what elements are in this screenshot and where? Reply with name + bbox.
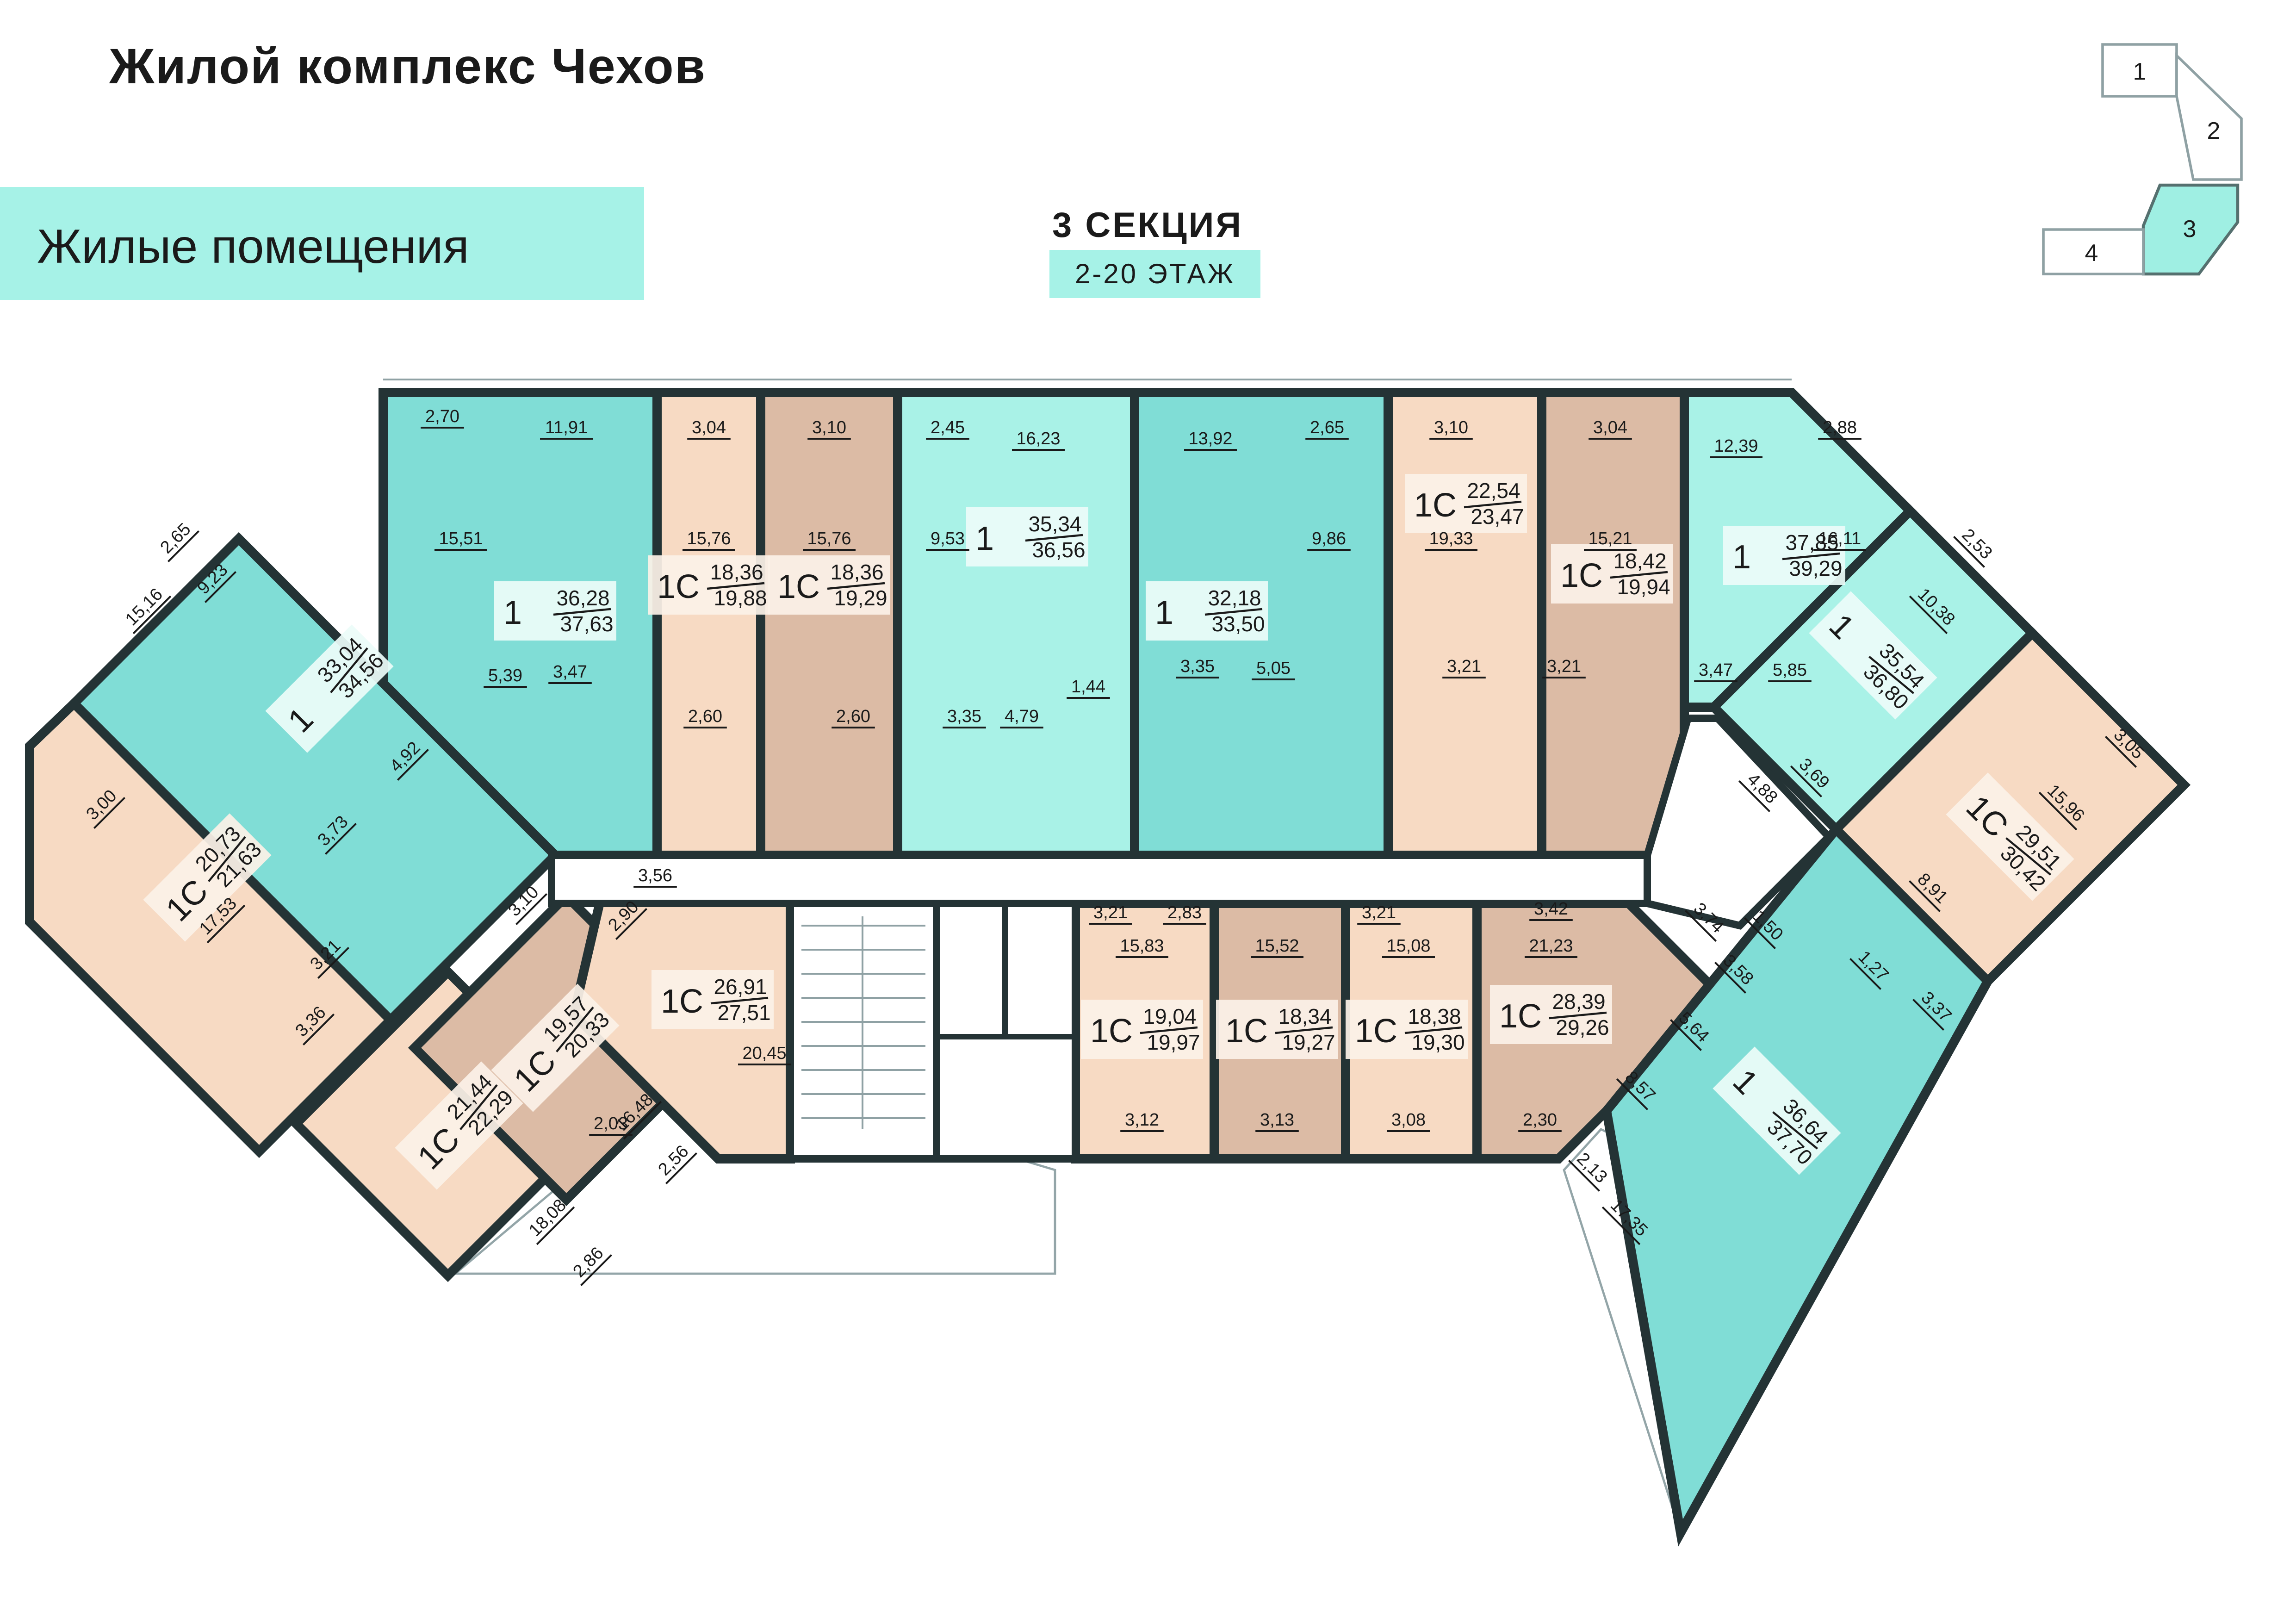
apartment-area-living: 35,34 (1028, 512, 1081, 536)
svg-text:2,88: 2,88 (1823, 418, 1857, 437)
page-title: Жилой комплекс Чехов (109, 38, 706, 94)
apartment-area-total: 37,63 (560, 612, 613, 636)
dimension-label: 2,30 (1518, 1110, 1562, 1131)
dimension-label: 4,79 (1000, 707, 1043, 728)
svg-text:13,92: 13,92 (1188, 429, 1232, 448)
floor-plan: 136,2837,631С18,3619,881С18,3619,29135,3… (30, 380, 2184, 1533)
svg-text:3,10: 3,10 (1434, 418, 1468, 437)
residential-badge-label: Жилые помещения (37, 220, 469, 274)
apartment-type: 1С (777, 568, 820, 605)
dimension-label: 2,03 (589, 1114, 633, 1135)
svg-text:5,85: 5,85 (1773, 660, 1807, 680)
svg-text:2,53: 2,53 (1958, 525, 1996, 563)
apartment-type: 1С (1355, 1013, 1397, 1050)
dimension-label: 2,45 (926, 418, 969, 439)
apartment-area-total: 29,26 (1556, 1015, 1609, 1039)
dimension-label: 3,42 (1529, 899, 1573, 920)
apartment-area-total: 19,27 (1282, 1030, 1335, 1054)
apartment-area-total: 19,97 (1147, 1030, 1200, 1054)
dimension-label: 15,76 (683, 529, 735, 550)
svg-text:2,30: 2,30 (1523, 1110, 1557, 1130)
svg-text:3,10: 3,10 (812, 418, 846, 437)
dimension-label: 3,04 (1589, 418, 1632, 439)
apartment-area-total: 19,30 (1411, 1030, 1464, 1054)
svg-text:12,39: 12,39 (1714, 436, 1758, 456)
dimension-label: 15,76 (803, 529, 856, 550)
svg-text:3,47: 3,47 (553, 662, 587, 682)
svg-text:15,08: 15,08 (1386, 936, 1430, 956)
svg-text:3,35: 3,35 (1180, 657, 1215, 676)
svg-text:19,33: 19,33 (1429, 529, 1473, 548)
apartment-area-living: 18,36 (830, 560, 883, 584)
svg-text:2,45: 2,45 (931, 418, 965, 437)
svg-text:2,65: 2,65 (157, 520, 195, 558)
apartment-area-living: 18,42 (1613, 549, 1666, 573)
apartment-area-total: 27,51 (717, 1001, 770, 1025)
dimension-label: 9,53 (926, 529, 969, 550)
svg-text:15,21: 15,21 (1588, 529, 1632, 548)
apartment-area-living: 36,28 (556, 586, 609, 610)
apartment-label: 1С18,3819,30 (1346, 1000, 1468, 1059)
svg-text:2,65: 2,65 (1310, 418, 1344, 437)
apartment-type: 1С (661, 983, 703, 1020)
dimension-label: 3,21 (1442, 657, 1486, 678)
svg-text:2,83: 2,83 (1167, 903, 1202, 922)
dimension-label: 3,21 (1357, 903, 1401, 924)
apartment-label: 135,3436,56 (966, 507, 1088, 566)
minimap-label-2: 2 (2207, 118, 2221, 144)
apartment-type: 1С (1414, 487, 1457, 524)
svg-text:5,05: 5,05 (1256, 659, 1291, 678)
dimension-label: 3,10 (807, 418, 851, 439)
dimension-label: 3,08 (1387, 1110, 1430, 1131)
svg-text:3,21: 3,21 (1093, 903, 1128, 922)
dimension-label: 13,92 (1184, 429, 1237, 450)
dimension-label: 3,10 (1429, 418, 1473, 439)
apartment-a7-1s-19-94[interactable] (1542, 392, 1684, 855)
apartment-area-living: 18,34 (1278, 1004, 1331, 1028)
svg-text:5,39: 5,39 (488, 666, 522, 685)
apartment-type: 1 (1155, 594, 1173, 631)
dimension-label: 9,86 (1307, 529, 1351, 550)
svg-text:15,76: 15,76 (807, 529, 851, 548)
apartment-area-living: 32,18 (1208, 586, 1261, 610)
dimension-label: 15,08 (1382, 936, 1435, 957)
apartment-type: 1 (1732, 539, 1751, 576)
svg-text:3,12: 3,12 (1125, 1110, 1159, 1130)
apartment-type: 1 (975, 520, 994, 557)
dimension-label: 2,88 (1818, 418, 1862, 439)
apartment-label: 1С19,0419,97 (1081, 1000, 1203, 1059)
apartment-area-living: 18,36 (710, 560, 763, 584)
dimension-label: 5,39 (484, 666, 527, 687)
svg-text:4,79: 4,79 (1005, 707, 1039, 726)
apartment-label: 1С22,5423,47 (1405, 474, 1527, 533)
minimap-label-4: 4 (2085, 240, 2098, 267)
svg-text:9,53: 9,53 (931, 529, 965, 548)
apartment-a2-1s-19-88[interactable] (657, 392, 761, 855)
apartment-type: 1 (503, 594, 522, 631)
dimension-label: 3,04 (687, 418, 731, 439)
apartment-area-living: 22,54 (1467, 479, 1520, 503)
svg-text:3,42: 3,42 (1534, 899, 1568, 919)
dimension-label: 2,70 (421, 407, 464, 428)
apartment-area-living: 28,39 (1552, 989, 1605, 1014)
dimension-label: 2,65 (1305, 418, 1349, 439)
apartment-label: 132,1833,50 (1146, 581, 1268, 641)
dimension-label: 19,33 (1425, 529, 1477, 550)
apartment-a6-1s-23-47[interactable] (1388, 392, 1542, 855)
dimension-label: 2,60 (832, 707, 875, 728)
apartment-type: 1С (657, 568, 700, 605)
apartment-area-total: 39,29 (1789, 556, 1842, 580)
dimension-label: 1,44 (1067, 677, 1110, 698)
dimension-label: 3,47 (1694, 660, 1738, 681)
svg-text:2,60: 2,60 (836, 707, 870, 726)
svg-text:2,60: 2,60 (688, 707, 722, 726)
svg-text:2,70: 2,70 (425, 407, 459, 426)
floors-badge-label: 2-20 ЭТАЖ (1075, 258, 1235, 289)
apartment-label: 1С18,3419,27 (1216, 1000, 1338, 1059)
dimension-label: 15,51 (434, 529, 487, 550)
dimension-label: 15,21 (1584, 529, 1637, 550)
svg-text:21,23: 21,23 (1529, 936, 1573, 956)
apartment-label: 1С28,3929,26 (1490, 985, 1612, 1044)
dimension-label: 3,13 (1255, 1110, 1299, 1131)
svg-text:1,44: 1,44 (1071, 677, 1105, 697)
apartment-label: 1С18,3619,88 (648, 555, 770, 615)
svg-text:15,51: 15,51 (439, 529, 483, 548)
apartment-area-living: 18,38 (1408, 1004, 1461, 1028)
dimension-label: 3,21 (1542, 657, 1586, 678)
svg-text:16,11: 16,11 (1818, 529, 1861, 548)
apartment-label: 136,2837,63 (494, 581, 616, 641)
dimension-label: 15,83 (1116, 936, 1168, 957)
svg-text:2,03: 2,03 (594, 1114, 628, 1133)
dimension-label: 20,45 (738, 1044, 791, 1064)
dimension-label: 12,39 (1710, 436, 1762, 457)
dimension-label: 3,47 (548, 662, 592, 683)
svg-text:3,04: 3,04 (692, 418, 726, 437)
minimap-label-1: 1 (2133, 58, 2147, 85)
dimension-label: 3,56 (633, 866, 677, 887)
svg-text:20,45: 20,45 (742, 1044, 786, 1063)
apartment-area-total: 19,88 (714, 586, 767, 610)
apartment-label: 1С26,9127,51 (652, 970, 774, 1029)
dimension-label: 5,85 (1768, 660, 1812, 681)
svg-text:9,86: 9,86 (1312, 529, 1346, 548)
apartment-type: 1С (1499, 998, 1542, 1035)
svg-text:16,23: 16,23 (1016, 429, 1060, 448)
dimension-label: 5,05 (1252, 659, 1295, 679)
dimension-label: 16,23 (1012, 429, 1065, 450)
dimension-label: 3,21 (1089, 903, 1132, 924)
apartment-area-total: 19,94 (1617, 575, 1670, 599)
section-title: 3 СЕКЦИЯ (1052, 205, 1243, 245)
dimension-label: 3,35 (943, 707, 986, 728)
svg-text:3,21: 3,21 (1362, 903, 1396, 922)
svg-text:3,21: 3,21 (1547, 657, 1581, 676)
svg-text:15,52: 15,52 (1255, 936, 1299, 956)
dimension-label: 3,12 (1120, 1110, 1164, 1131)
apartment-type: 1С (1090, 1013, 1133, 1050)
dimension-label: 11,91 (540, 418, 593, 439)
svg-text:3,35: 3,35 (947, 707, 981, 726)
apartment-area-total: 33,50 (1211, 612, 1265, 636)
apartment-area-total: 23,47 (1471, 504, 1524, 529)
floorplan-page: Жилой комплекс Чехов Жилые помещения 3 С… (0, 0, 2296, 1624)
apartment-label: 1С18,3619,29 (768, 555, 890, 615)
svg-text:3,47: 3,47 (1699, 660, 1733, 680)
dimension-label: 2,65 (154, 516, 199, 562)
apartment-area-living: 19,04 (1143, 1004, 1196, 1028)
building-minimap: 1 2 3 4 (2043, 44, 2241, 274)
minimap-label-3: 3 (2183, 216, 2197, 243)
svg-text:11,91: 11,91 (545, 418, 588, 437)
dimension-label: 21,23 (1525, 936, 1577, 957)
svg-text:3,04: 3,04 (1593, 418, 1627, 437)
svg-text:15,83: 15,83 (1120, 936, 1164, 956)
svg-text:3,21: 3,21 (1447, 657, 1481, 676)
svg-text:3,56: 3,56 (638, 866, 672, 885)
apartment-area-living: 26,91 (714, 975, 767, 999)
apartment-a4-1-36-56[interactable] (898, 392, 1135, 855)
apartment-a3-1s-19-29[interactable] (761, 392, 898, 855)
dimension-label: 16,11 (1813, 529, 1866, 550)
dimension-label: 3,35 (1176, 657, 1219, 678)
dimension-label: 2,83 (1163, 903, 1206, 924)
apartment-type: 1С (1225, 1013, 1268, 1050)
svg-text:3,13: 3,13 (1260, 1110, 1294, 1130)
apartment-area-total: 36,56 (1032, 538, 1085, 562)
dimension-label: 15,52 (1251, 936, 1303, 957)
corridor (552, 855, 1647, 903)
dimension-label: 2,60 (683, 707, 727, 728)
apartment-label: 1С18,4219,94 (1551, 544, 1673, 604)
svg-text:3,08: 3,08 (1391, 1110, 1426, 1130)
svg-text:15,76: 15,76 (687, 529, 731, 548)
apartment-area-total: 19,29 (834, 586, 887, 610)
apartment-type: 1С (1560, 557, 1603, 594)
